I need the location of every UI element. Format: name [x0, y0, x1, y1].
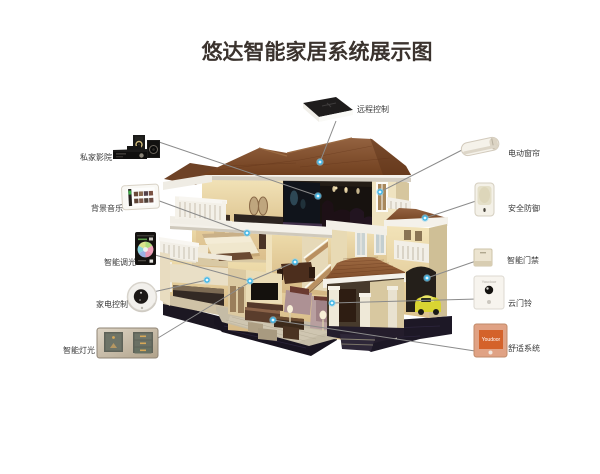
svg-text:舒适系统: 舒适系统: [508, 343, 540, 353]
svg-text:悠达智能家居系统展示图: 悠达智能家居系统展示图: [201, 40, 433, 64]
svg-text:Youdoor: Youdoor: [482, 279, 497, 284]
svg-text:电动窗帘: 电动窗帘: [508, 148, 540, 158]
svg-text:云门铃: 云门铃: [508, 298, 532, 308]
svg-text:背景音乐: 背景音乐: [91, 203, 123, 213]
svg-text:私家影院: 私家影院: [80, 152, 112, 162]
svg-text:智能调光: 智能调光: [104, 257, 136, 267]
svg-text:智能门禁: 智能门禁: [507, 255, 539, 265]
svg-text:远程控制: 远程控制: [357, 104, 389, 114]
svg-text:安全防御: 安全防御: [508, 203, 540, 213]
svg-text:Youdoor: Youdoor: [482, 337, 501, 343]
svg-text:智能灯光: 智能灯光: [63, 345, 95, 355]
svg-text:家电控制: 家电控制: [96, 299, 128, 309]
